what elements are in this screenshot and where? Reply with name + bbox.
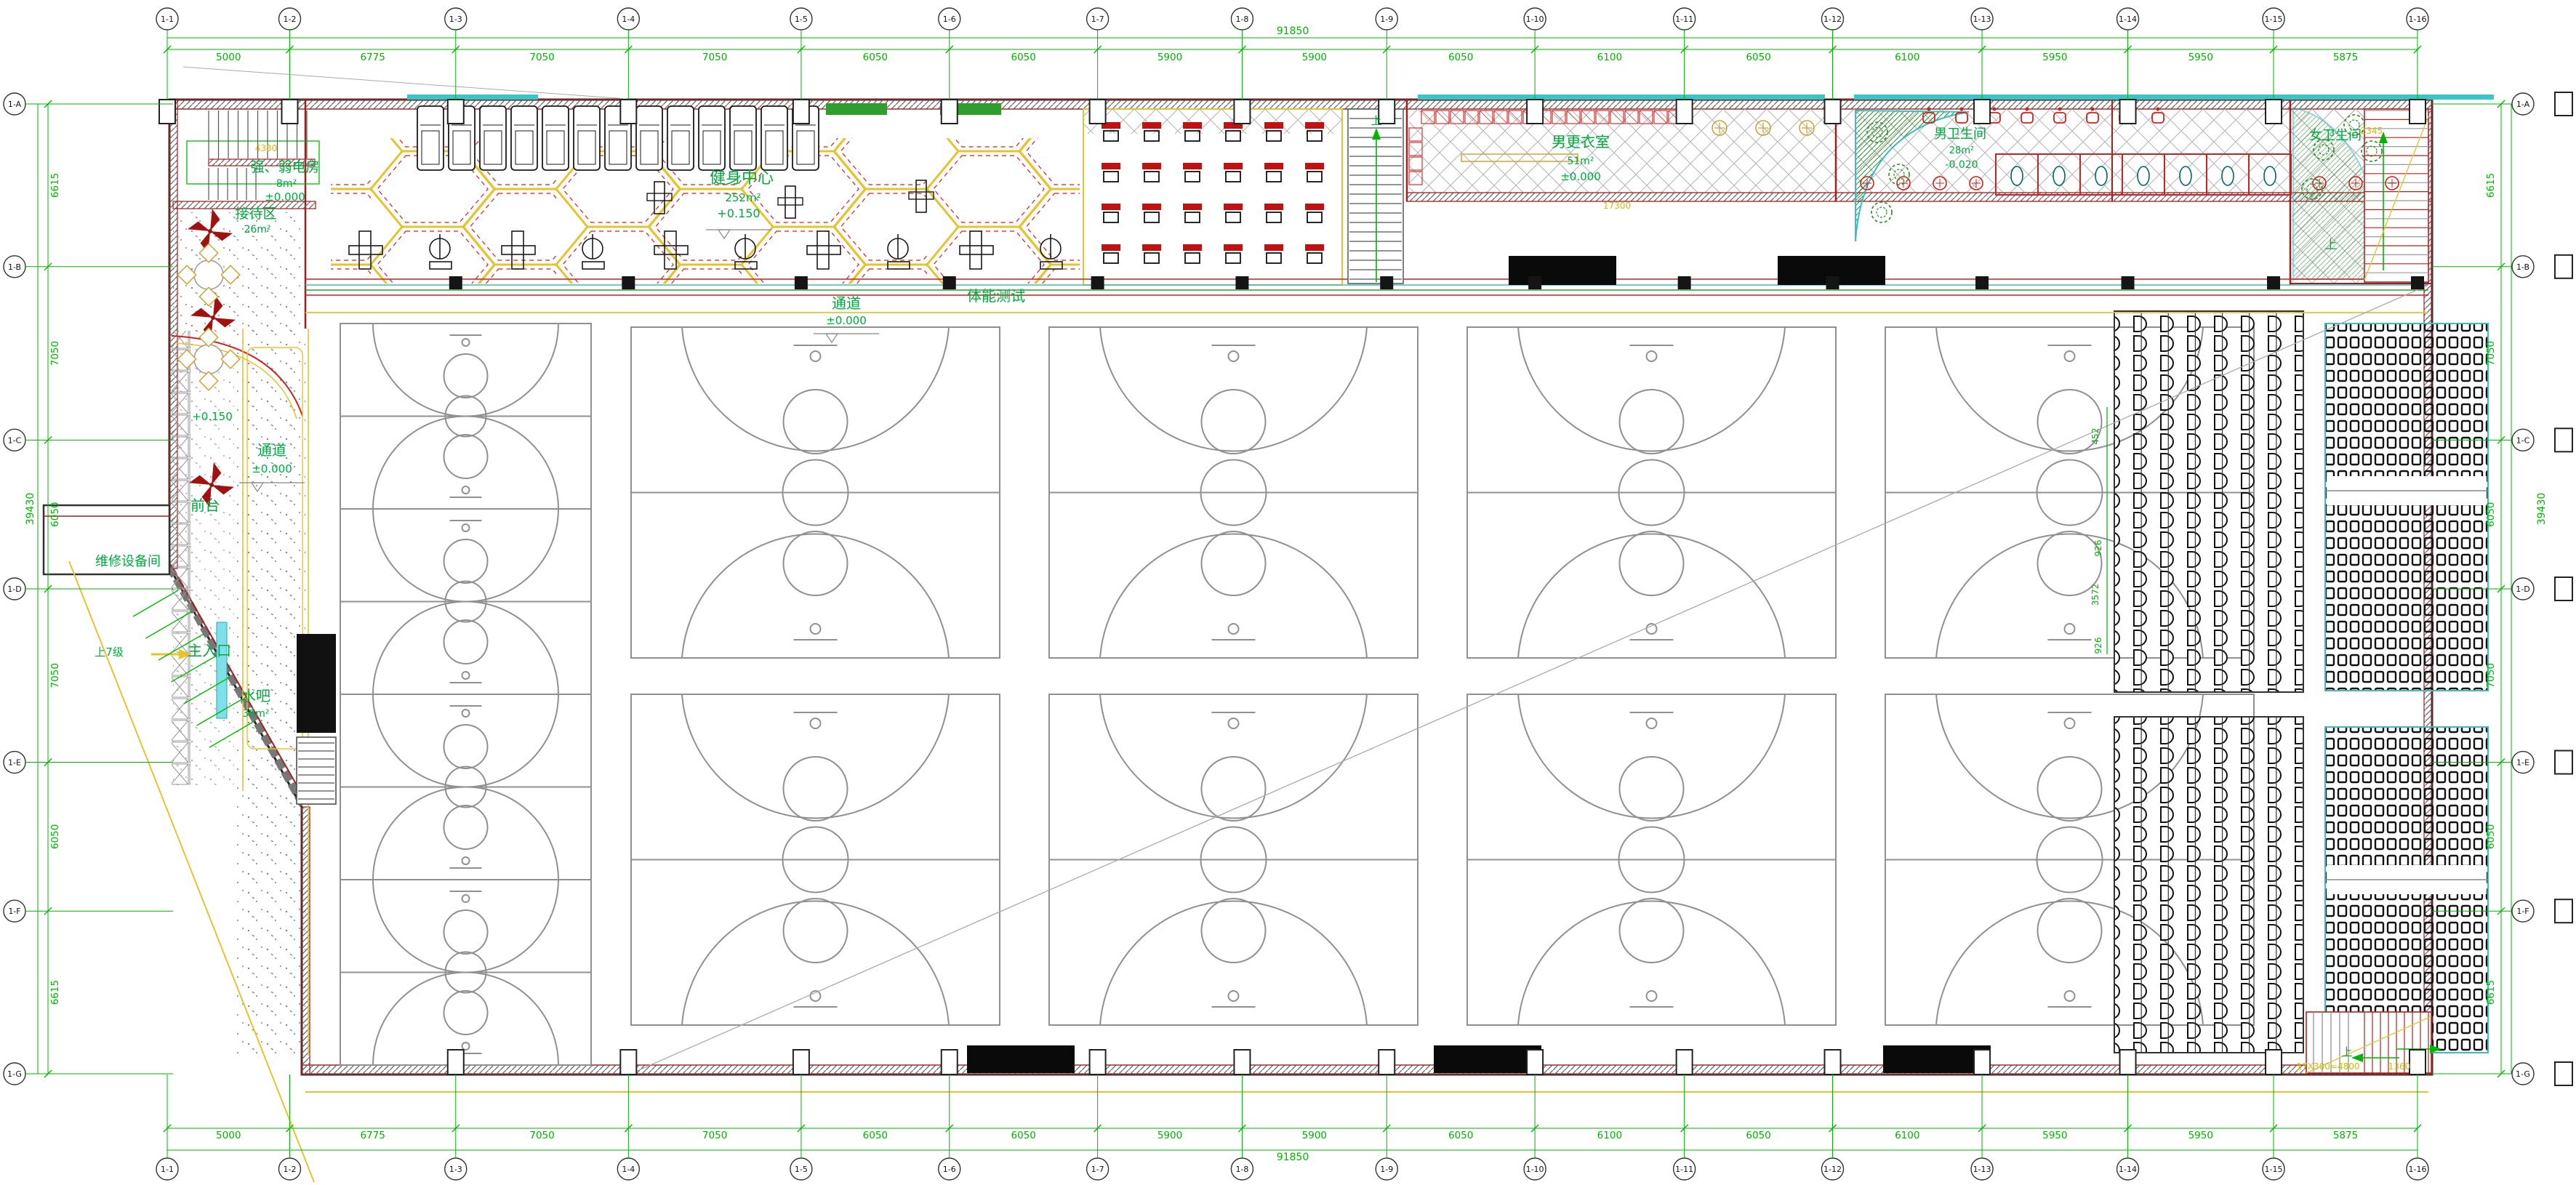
room-men-locker: 男更衣室	[1552, 133, 1610, 150]
dim-top: 7050	[529, 52, 554, 63]
grid-bubble-label: 1-7	[1091, 15, 1104, 24]
dim-bottom: 6050	[1746, 1130, 1770, 1141]
misc-dim: 926	[2093, 638, 2103, 654]
grid-bubble-label: 1-9	[1380, 1165, 1393, 1174]
dim-bottom: 6775	[360, 1130, 385, 1141]
grid-bubble-label: 1-9	[1380, 15, 1393, 24]
section-marker-square	[2555, 577, 2572, 600]
section-marker-square	[2555, 92, 2572, 116]
grid-bubble-label: 1-13	[1973, 1165, 1991, 1174]
dim-right-total: 39430	[2536, 493, 2548, 526]
room-maintenance: 维修设备间	[95, 554, 161, 569]
grid-bubble-label: 1-16	[2409, 15, 2427, 24]
grid-bubble-label: 1-6	[943, 1165, 956, 1174]
dim-top: 7050	[702, 52, 727, 63]
misc-dim: 3572	[2090, 584, 2100, 606]
dim-top: 6050	[863, 52, 888, 63]
grid-bubble-label: 1-E	[2516, 758, 2529, 768]
misc-dim: 452	[2090, 428, 2100, 445]
dim-right: 6615	[2485, 173, 2497, 198]
cad-floorplan-canvas: 1-11-11-21-21-31-31-41-41-51-51-61-61-71…	[0, 0, 2576, 1185]
grid-bubble-label: 1-F	[8, 907, 20, 916]
grid-bubble-label: 1-1	[161, 15, 174, 24]
dim-top: 5900	[1157, 52, 1182, 63]
room-fitness-center-area: 252m²	[725, 191, 761, 204]
grid-bubble-label: 1-2	[283, 15, 296, 24]
grid-bubble-label: 1-5	[795, 15, 808, 24]
exterior-steps: 上7级	[95, 646, 124, 659]
grid-bubble-label: 1-3	[449, 1165, 462, 1174]
grid-bubble-label: 1-B	[2516, 262, 2529, 272]
dim-top: 6775	[360, 52, 385, 63]
dim-bottom: 6100	[1597, 1130, 1622, 1141]
room-fitness-center: 健身中心	[710, 169, 774, 188]
grid-bubble-label: 1-B	[8, 262, 21, 272]
section-marker-square	[2555, 255, 2572, 278]
dim-right: 6050	[2485, 502, 2497, 526]
grid-bubble-label: 1-12	[1823, 1165, 1842, 1174]
grid-bubble-label: 1-D	[2516, 585, 2529, 594]
dim-bottom: 5875	[2333, 1130, 2358, 1141]
section-marker-square	[2555, 899, 2572, 923]
front-desk: 前台	[190, 497, 220, 514]
misc-dim: 2345	[2361, 126, 2383, 136]
room-women-toilet: 女卫生间	[2309, 128, 2362, 143]
corridor-left: 通道	[257, 441, 286, 459]
dim-bottom: 6050	[1448, 1130, 1473, 1141]
dim-bottom: 5950	[2042, 1130, 2067, 1141]
grid-bubble-label: 1-1	[161, 1165, 174, 1174]
room-strong-weak-electric: 强、弱电房	[250, 159, 319, 175]
grid-bubble-label: 1-A	[8, 100, 22, 109]
room-water-bar-area: 38m²	[242, 708, 269, 720]
grid-bubble-label: 1-15	[2265, 15, 2283, 24]
dim-bottom: 5000	[216, 1130, 241, 1141]
grid-bubble-label: 1-C	[2516, 435, 2530, 445]
grid-bubble-label: 1-15	[2265, 1165, 2283, 1174]
room-reception-area: 26m²	[244, 224, 270, 236]
floorplan-svg: 1-11-11-21-21-31-31-41-41-51-51-61-61-71…	[0, 0, 2576, 1185]
dim-top: 5900	[1302, 52, 1327, 63]
dim-left: 6615	[49, 173, 61, 198]
dim-top: 6050	[1011, 52, 1036, 63]
grid-bubble-label: 1-7	[1091, 1165, 1104, 1174]
dim-top: 6050	[1746, 52, 1770, 63]
corridor-left-level: ±0.000	[252, 462, 292, 475]
grid-bubble-label: 1-14	[2119, 15, 2137, 24]
dim-left: 6050	[49, 502, 61, 526]
left-wing-level: +0.150	[192, 410, 233, 423]
dim-bottom-total: 91850	[1277, 1152, 1309, 1163]
grid-bubble-label: 1-5	[795, 1165, 808, 1174]
room-reception: 接待区	[235, 206, 276, 222]
misc-dim: 4380	[255, 143, 278, 153]
grid-bubble-label: 1-D	[7, 585, 21, 594]
bleachers	[2114, 311, 2488, 1053]
grid-bubble-label: 1-G	[7, 1069, 22, 1079]
room-fitness-test: 体能测试	[967, 287, 1025, 305]
grid-bubble-label: 1-12	[1823, 15, 1842, 24]
dim-top: 6050	[1448, 52, 1473, 63]
dim-bottom: 5900	[1157, 1130, 1182, 1141]
corridor-top: 通道	[832, 294, 861, 312]
dim-right: 6615	[2485, 980, 2497, 1005]
corridor-top-level: ±0.000	[826, 314, 867, 327]
room-men-toilet: 男卫生间	[1934, 126, 1986, 142]
dim-top: 6100	[1895, 52, 1919, 63]
dim-left: 7050	[49, 663, 61, 688]
dim-top: 5950	[2042, 52, 2067, 63]
room-men-locker-level: ±0.000	[1560, 170, 1601, 183]
grid-bubble-label: 1-2	[283, 1165, 296, 1174]
stair-topright-up: 上	[2325, 238, 2338, 252]
section-marker-square	[2555, 1062, 2572, 1085]
grid-bubble-label: 1-3	[449, 15, 462, 24]
grid-bubble-label: 1-A	[2516, 100, 2530, 109]
room-men-toilet-level: -0.020	[1945, 159, 1978, 171]
grid-bubble-label: 1-10	[1526, 15, 1544, 24]
dim-bottom: 6050	[863, 1130, 888, 1141]
dim-bottom: 7050	[529, 1130, 554, 1141]
misc-dim: 926	[2093, 540, 2103, 557]
section-marker-square	[2555, 428, 2572, 451]
grid-bubble-label: 1-8	[1235, 1165, 1248, 1174]
room-strong-weak-electric-area: 8m²	[276, 178, 297, 190]
dim-bottom: 5900	[1302, 1130, 1327, 1141]
dim-bottom: 5950	[2188, 1130, 2213, 1141]
dim-top-total: 91850	[1277, 25, 1309, 37]
grid-bubble-label: 1-4	[622, 1165, 635, 1174]
room-strong-weak-electric-level: ±0.000	[265, 190, 305, 204]
dim-bottom: 6050	[1011, 1130, 1036, 1141]
grid-bubble-label: 1-4	[622, 15, 635, 24]
room-men-locker-area: 51m²	[1567, 156, 1594, 167]
main-entrance: 主入口	[188, 642, 231, 659]
stair-bottomright-up: 上	[2341, 1045, 2352, 1059]
grid-bubble-label: 1-11	[1675, 1165, 1693, 1174]
grid-bubble-label: 1-C	[8, 435, 22, 445]
grid-bubble-label: 1-F	[2516, 907, 2529, 916]
dim-bottom: 6100	[1895, 1130, 1919, 1141]
dim-left: 7050	[49, 341, 61, 366]
grid-bubble-label: 1-13	[1973, 15, 1991, 24]
dim-bottom: 7050	[702, 1130, 727, 1141]
misc-dim: 17X300=4800	[2297, 1061, 2360, 1072]
dim-right: 7050	[2485, 341, 2497, 366]
dim-right: 7050	[2485, 663, 2497, 688]
stair-mid-up: 上	[1371, 114, 1381, 127]
misc-dim: 17300	[1603, 201, 1631, 211]
grid-bubble-label: 1-14	[2119, 1165, 2137, 1174]
room-men-toilet-area: 28m²	[1949, 145, 1974, 156]
grid-bubble-label: 1-10	[1526, 1165, 1544, 1174]
room-fitness-center-level: +0.150	[717, 206, 760, 220]
grid-bubble-label: 1-16	[2409, 1165, 2427, 1174]
dim-left: 6050	[49, 824, 61, 849]
dim-left: 6615	[49, 980, 61, 1005]
section-marker-square	[2555, 751, 2572, 774]
dim-top: 5000	[216, 52, 241, 63]
dim-top: 5875	[2333, 52, 2358, 63]
misc-dim: 1360	[2388, 1061, 2411, 1072]
grid-bubble-label: 1-E	[8, 758, 21, 768]
grid-bubble-label: 1-G	[2516, 1069, 2530, 1079]
grid-bubble-label: 1-11	[1675, 15, 1693, 24]
dim-top: 5950	[2188, 52, 2213, 63]
dim-top: 6100	[1597, 52, 1622, 63]
dim-left-total: 39430	[25, 493, 36, 526]
grid-bubble-label: 1-6	[943, 15, 956, 24]
grid-bubble-label: 1-8	[1235, 15, 1248, 24]
room-water-bar: 水吧	[241, 687, 270, 704]
dim-right: 6050	[2485, 824, 2497, 849]
